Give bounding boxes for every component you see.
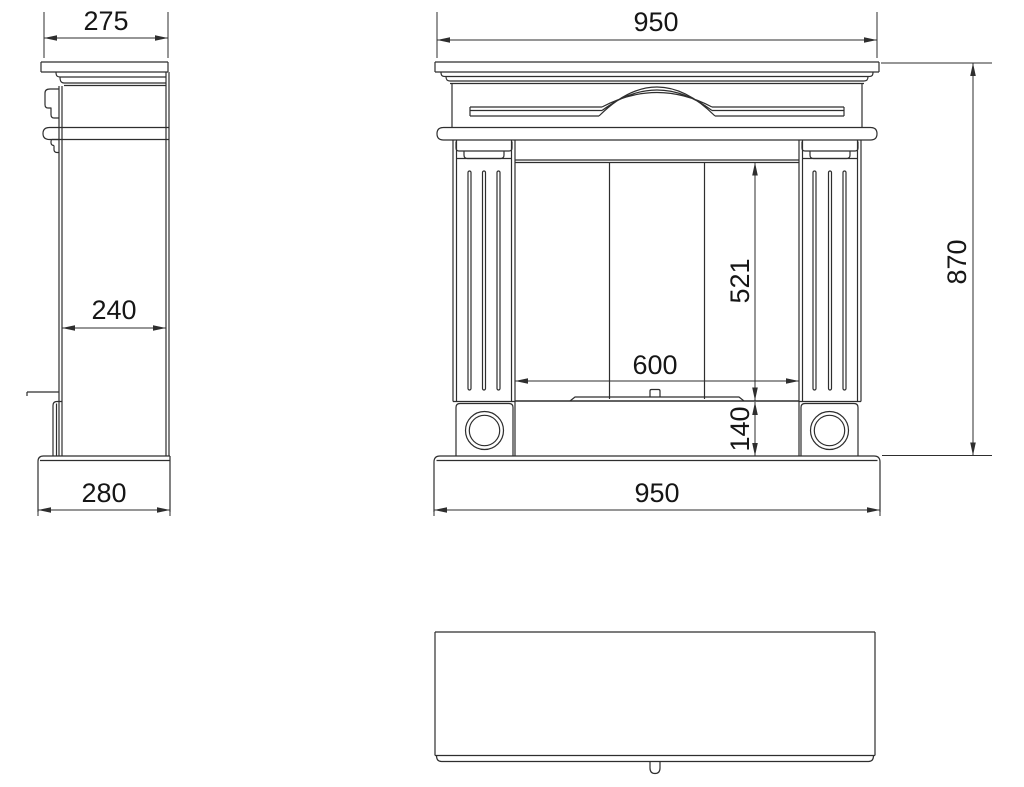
dimension-total-height: 870 [881,63,992,456]
rosette-inner-circle [469,415,499,445]
rosette-outer-circle [811,412,849,450]
plan-switch-tab [650,762,660,774]
arrowhead-right [864,37,877,43]
column-shaft [453,140,515,402]
side-view [27,62,170,512]
side-body-panel [59,72,169,456]
arrowhead-bottom [970,443,976,456]
arrowhead-left [44,35,57,41]
front-shelf-board [435,62,879,72]
dimension-label: 140 [725,406,755,451]
flute [843,171,846,390]
arrowhead-right [155,35,168,41]
dimension-label: 240 [91,295,136,325]
arrowhead-right [867,507,880,513]
dimension-label: 521 [725,258,755,303]
flute [829,171,832,390]
dimension-label: 950 [633,7,678,37]
side-hearth-ledge [27,392,59,396]
column-shaft [799,140,861,402]
frieze-arch-molding [599,87,715,116]
dimension-label: 280 [81,478,126,508]
column-capital [456,142,512,159]
flute [497,171,500,390]
dimension-side-top-depth: 275 [44,6,168,58]
arrowhead-top [752,163,758,176]
arrowhead-left [437,37,450,43]
dimension-plinth-height: 140 [725,402,758,456]
arrowhead-right [153,325,166,331]
arrowhead-top [970,63,976,76]
arrowhead-left [515,378,528,384]
burner-switch-notch [650,390,660,398]
side-shelf-board [41,62,168,72]
left-column [453,140,515,402]
frieze-molding-strip [470,107,844,116]
plan-view [435,632,875,774]
plan-front-edge-strip [437,756,874,762]
side-sub-molding [51,140,59,153]
arrowhead-left [38,507,51,513]
dimension-side-base-depth: 280 [38,462,170,516]
side-pedestal-strip [53,402,62,457]
right-pedestal [801,404,858,457]
dimension-label: 600 [632,350,677,380]
plan-shelf-outline [435,632,875,756]
dimension-front-top-width: 950 [437,7,877,58]
rosette-outer-circle [466,412,504,450]
dimension-front-base-width: 950 [434,462,880,516]
lintel-band [515,160,799,163]
torus-molding-bar [437,128,877,141]
front-shelf-molding [441,72,873,84]
flute [483,171,486,390]
dimension-label: 275 [83,6,128,36]
arrowhead-right [157,507,170,513]
rosette-inner-circle [814,415,844,445]
dimension-opening-width: 600 [515,350,799,384]
right-column [799,140,861,402]
arrowhead-left [62,325,75,331]
arrowhead-right [786,378,799,384]
column-capital [802,142,858,159]
technical-drawing-page: 275 240 280 [0,0,1024,787]
extension-line [881,63,992,456]
side-shelf-molding [56,72,166,86]
left-pedestal [456,404,513,457]
dimension-label: 870 [942,239,972,284]
flute [468,171,471,390]
dimension-side-body-depth: 240 [62,295,166,331]
dimension-label: 950 [634,478,679,508]
front-view [434,62,880,512]
arrowhead-left [434,507,447,513]
flute [813,171,816,390]
side-capital-profile [45,89,59,118]
arrowhead-bottom [752,388,758,401]
dimension-opening-height: 521 [725,163,758,401]
drawing-canvas: 275 240 280 [0,0,1024,787]
